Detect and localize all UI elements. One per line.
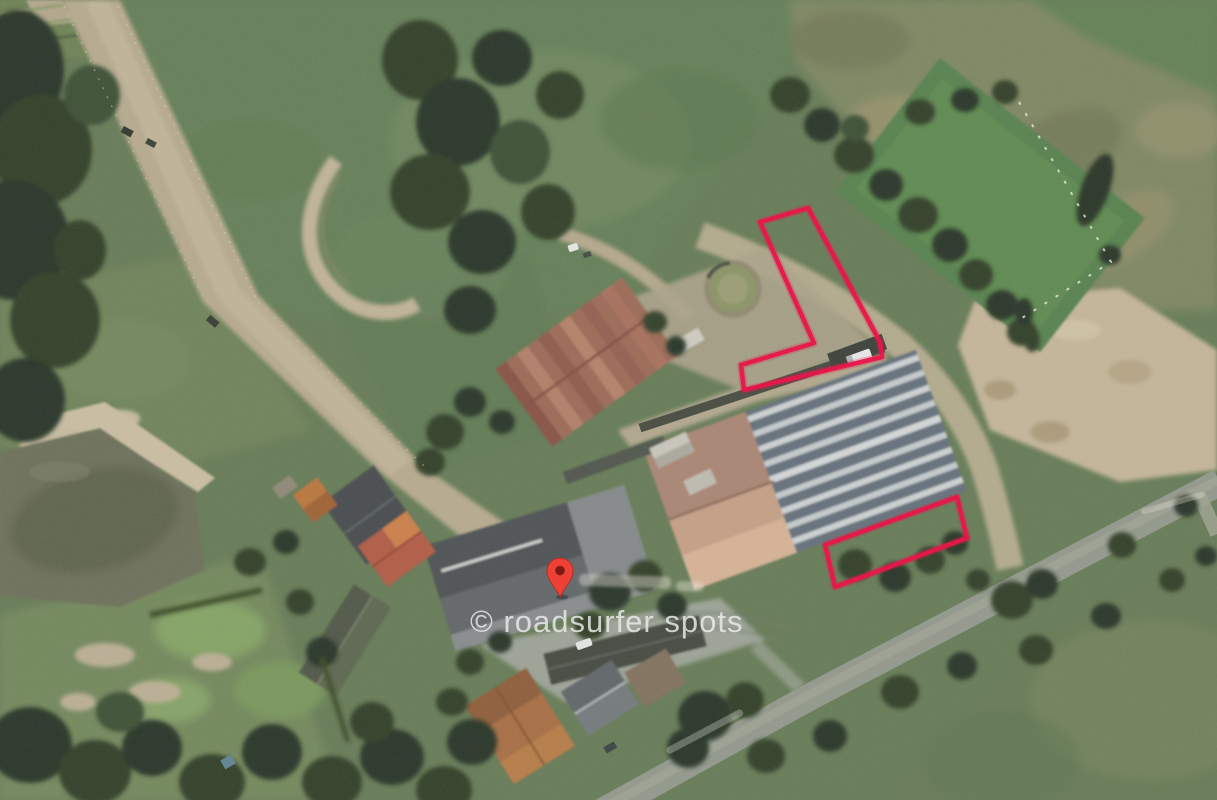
south-spot-outline-glow bbox=[825, 497, 967, 587]
map-annotations bbox=[0, 0, 1217, 800]
street-label-blur bbox=[665, 491, 1205, 755]
map-viewport[interactable]: © roadsurfer spots bbox=[0, 0, 1217, 800]
watermark: © roadsurfer spots bbox=[470, 604, 743, 640]
map-pin-icon[interactable] bbox=[547, 558, 573, 600]
poi-label-blur bbox=[579, 574, 704, 592]
